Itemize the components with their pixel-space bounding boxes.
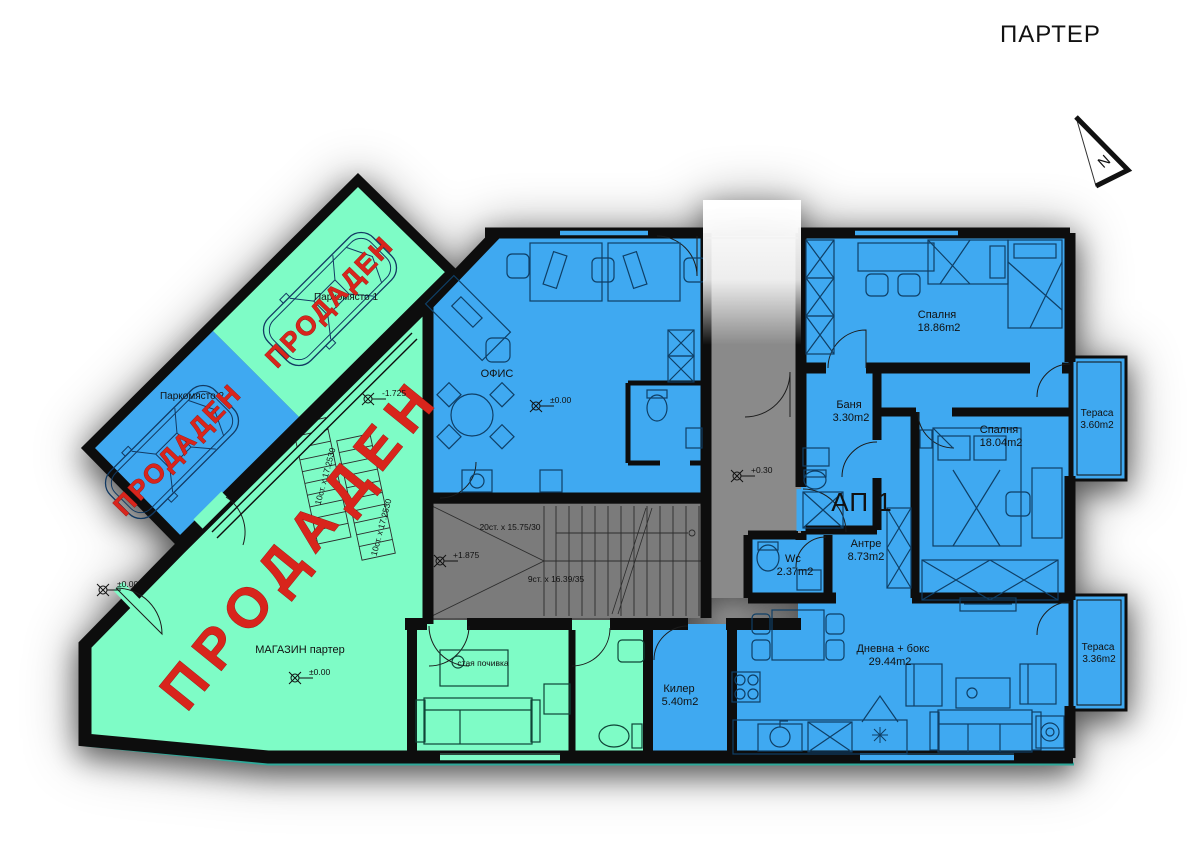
- wc-area: 2.37m2: [777, 566, 814, 578]
- restroom-label: стая почивка: [457, 658, 508, 668]
- page-title: ПАРТЕР: [1000, 21, 1101, 48]
- floorplan-canvas: Паркомясто 1 Паркомясто 2 ПРОДАДЕН ПРОДА…: [0, 0, 1200, 847]
- floorplan-page: Паркомясто 1 Паркомясто 2 ПРОДАДЕН ПРОДА…: [0, 0, 1200, 847]
- bath-area: 3.30m2: [833, 412, 870, 424]
- wc-name: Wc: [785, 553, 801, 565]
- bath-name: Баня: [836, 399, 861, 411]
- corridor-elevation: +0.30: [751, 465, 773, 475]
- entrance-light: [703, 200, 801, 345]
- office-elevation: ±0.00: [550, 395, 571, 405]
- living-area: 29.44m2: [869, 656, 912, 668]
- floorplan: Паркомясто 1 Паркомясто 2 ПРОДАДЕН ПРОДА…: [85, 180, 1126, 764]
- bedroom2-area: 18.04m2: [980, 437, 1023, 449]
- closet-area: 5.40m2: [662, 696, 699, 708]
- hall-area: 8.73m2: [848, 551, 885, 563]
- shop-elevation-2: ±0.00: [309, 667, 330, 677]
- bedroom2-name: Спалня: [980, 424, 1019, 436]
- terrace2-name: Тераса: [1082, 642, 1115, 653]
- closet-name: Килер: [663, 683, 694, 695]
- shop-elevation-1: ±0.00: [117, 579, 138, 589]
- bedroom1-area: 18.86m2: [918, 322, 961, 334]
- terrace1-area: 3.60m2: [1080, 420, 1114, 431]
- room-fills: [85, 180, 1126, 764]
- stair-mid-elevation: +1.875: [453, 550, 480, 560]
- parking-elevation: -1.725: [382, 388, 406, 398]
- north-arrow-icon: N: [1076, 117, 1128, 186]
- bedroom1-name: Спалня: [918, 309, 957, 321]
- hall-name: Антре: [851, 538, 882, 550]
- stairs-upper-label: 20ст. x 15.75/30: [479, 522, 540, 532]
- office-label: ОФИС: [481, 368, 514, 380]
- shop-label: МАГАЗИН партер: [255, 644, 345, 656]
- apartment-label: АП 1: [831, 487, 892, 517]
- living-name: Дневна + бокс: [856, 643, 930, 655]
- stairs-lower-label: 9ст. x 16.39/35: [528, 574, 585, 584]
- terrace2-area: 3.36m2: [1082, 654, 1116, 665]
- terrace1-name: Тераса: [1081, 408, 1114, 419]
